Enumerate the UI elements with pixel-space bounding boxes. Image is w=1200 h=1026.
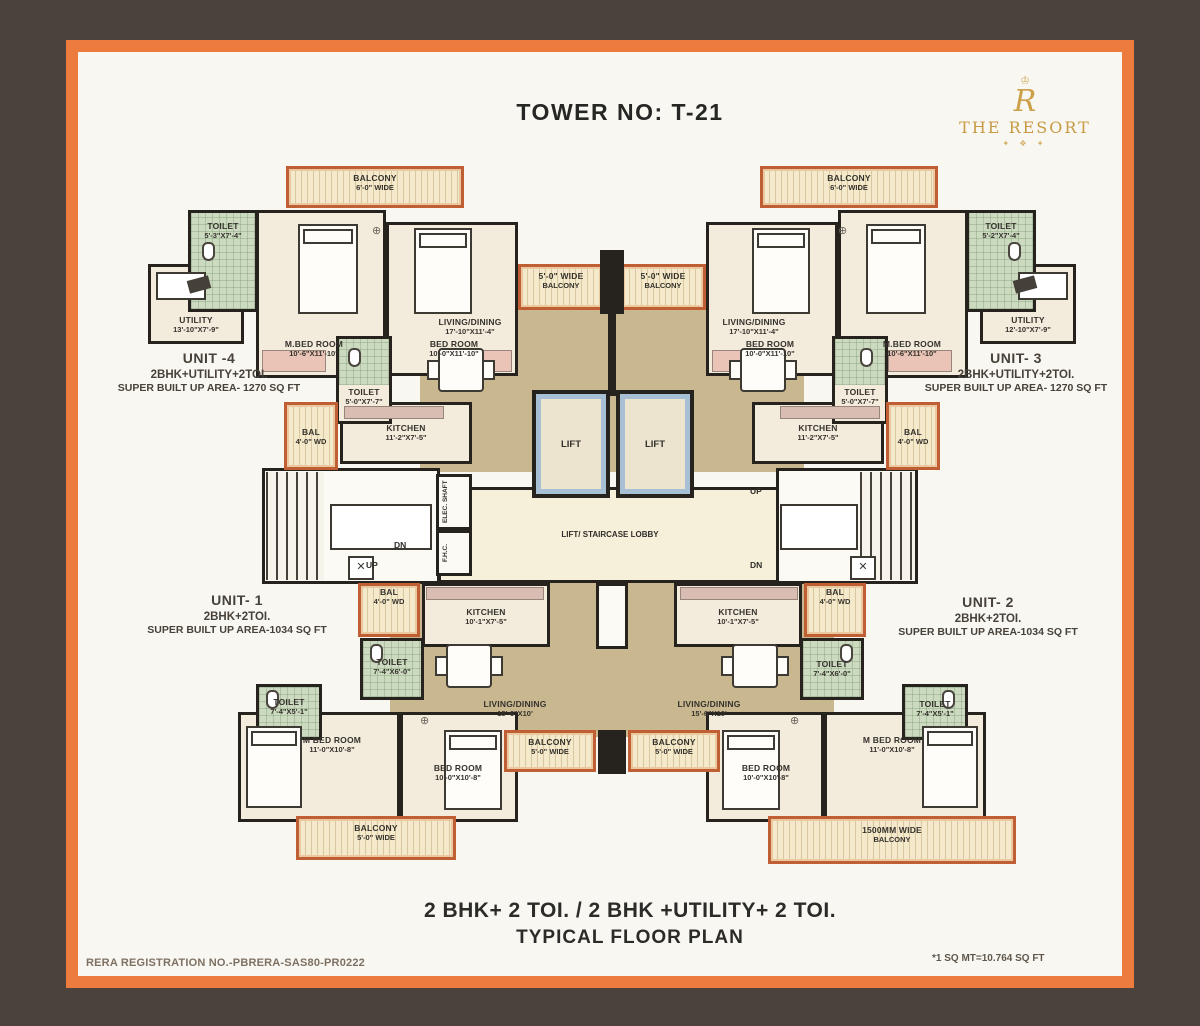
room-dim-text: 5'-0" WIDE xyxy=(504,748,596,757)
fan-icon: ⊕ xyxy=(790,716,799,727)
master-bedroom-label: M BED ROOM11'-0"X10'-8" xyxy=(282,736,382,754)
bedroom-label: BED ROOM10'-0"X10'-8" xyxy=(408,764,508,782)
room-dim-text: 5'-0" WIDE xyxy=(628,748,720,757)
fan-icon: ⊕ xyxy=(420,716,429,727)
stair-treads-left xyxy=(266,472,324,580)
room-dim-text: BALCONY xyxy=(518,282,604,291)
plan-type-caption: 2 BHK+ 2 TOI. / 2 BHK +UTILITY+ 2 TOI. xyxy=(70,899,1190,923)
living-dining-label: LIVING/DINING17'-10"X11'-4" xyxy=(424,318,516,336)
utility-label: UTILITY13'-10"X7'-9" xyxy=(150,316,242,334)
room-dim-text: 11'-0"X10'-8" xyxy=(282,746,382,755)
living-dining-label: LIVING/DINING15'-6"X10' xyxy=(462,700,568,718)
room-dim-text: 7'-4"X6'-0" xyxy=(358,668,426,677)
elec-shaft-label: ELEC. SHAFT xyxy=(442,478,449,526)
room-dim-text: 10'-1"X7'-5" xyxy=(430,618,542,627)
room-dim-text: 4'-0" WD xyxy=(887,438,939,447)
unit-name: UNIT- 2 xyxy=(862,594,1114,612)
logo-monogram: R xyxy=(936,87,1114,117)
toilet-label: TOILET7'-4"X6'-0" xyxy=(358,658,426,676)
room-dim-text: 6'-0" WIDE xyxy=(286,184,464,193)
unit-area: SUPER BUILT UP AREA-1034 SQ FT xyxy=(108,624,366,637)
room-dim-text: 10'-0"X11'-10" xyxy=(398,350,510,359)
fan-icon: ⊕ xyxy=(372,226,381,237)
bed-furniture xyxy=(298,224,358,314)
service-shaft-bottom xyxy=(596,583,628,649)
wall-center-divider xyxy=(608,312,616,396)
toilet-label: TOILET5'-0"X7'-7" xyxy=(824,388,896,406)
unit-area: SUPER BUILT UP AREA- 1270 SQ FT xyxy=(95,382,323,395)
fhc-label: F.H.C. xyxy=(442,534,449,572)
room-dim-text: 10'-0"X10'-8" xyxy=(408,774,508,783)
unit-type: 2BHK+UTILITY+2TOI. xyxy=(902,368,1130,382)
balcony-label: BALCONY5'-0" WIDE xyxy=(628,738,720,756)
kitchen-label: KITCHEN10'-1"X7'-5" xyxy=(430,608,542,626)
room-dim-text: 10'-0"X10'-8" xyxy=(716,774,816,783)
balcony-label: 5'-0" WIDEBALCONY xyxy=(620,272,706,290)
dining-table xyxy=(446,644,492,688)
unit-area: SUPER BUILT UP AREA-1034 SQ FT xyxy=(862,626,1114,639)
room-dim-text: 11'-2"X7'-5" xyxy=(346,434,466,443)
room-dim-text: BALCONY xyxy=(620,282,706,291)
wc-icon xyxy=(202,242,215,261)
bed-furniture xyxy=(866,224,926,314)
room-dim-text: 17'-10"X11'-4" xyxy=(424,328,516,337)
room-dim-text: 5'-0"X7'-7" xyxy=(824,398,896,407)
toilet-label: TOILET5'-3"X7'-4" xyxy=(188,222,258,240)
toilet-label: TOILET7'-4"X5'-1" xyxy=(898,700,972,718)
unit-name: UNIT- 3 xyxy=(902,350,1130,368)
master-bedroom-label: M BED ROOM11'-0"X10'-8" xyxy=(842,736,942,754)
room-dim-text: 12'-10"X7'-9" xyxy=(982,326,1074,335)
room-dim-text: 5'-3"X7'-4" xyxy=(188,232,258,241)
kitchen-counter xyxy=(344,406,444,419)
room-dim-text: 4'-0" WD xyxy=(804,598,866,607)
balcony-label: 1500MM WIDEBALCONY xyxy=(768,826,1016,844)
balcony-label: BALCONY6'-0" WIDE xyxy=(760,174,938,192)
room-dim-text: 11'-0"X10'-8" xyxy=(842,746,942,755)
unit-type: 2BHK+2TOI. xyxy=(862,612,1114,626)
living-dining-label: LIVING/DINING17'-10"X11'-4" xyxy=(708,318,800,336)
room-dim-text: 7'-4"X5'-1" xyxy=(898,710,972,719)
unit1-annotation: UNIT- 1 2BHK+2TOI. SUPER BUILT UP AREA-1… xyxy=(108,592,366,637)
room-dim-text: 15'-6"X10' xyxy=(462,710,568,719)
room-dim-text: 6'-0" WIDE xyxy=(760,184,938,193)
bed-furniture xyxy=(414,228,472,314)
bedroom-label: BED ROOM10'-0"X10'-8" xyxy=(716,764,816,782)
kitchen-label: KITCHEN11'-2"X7'-5" xyxy=(346,424,466,442)
lift-1: LIFT xyxy=(536,394,606,494)
stair-dn-label: DN xyxy=(394,540,406,550)
unit2-annotation: UNIT- 2 2BHK+2TOI. SUPER BUILT UP AREA-1… xyxy=(862,594,1114,639)
room-dim-text: 15'-6"X10' xyxy=(656,710,762,719)
stair-dn-label: DN xyxy=(750,560,762,570)
balcony-label: BALCONY5'-0" WIDE xyxy=(296,824,456,842)
toilet-label: TOILET5'-0"X7'-7" xyxy=(328,388,400,406)
room-dim-text: 11'-2"X7'-5" xyxy=(758,434,878,443)
room-dim-text: 5'-2"X7'-4" xyxy=(966,232,1036,241)
bed-furniture xyxy=(752,228,810,314)
toilet-label: TOILET7'-4"X6'-0" xyxy=(798,660,866,678)
kitchen-counter xyxy=(780,406,880,419)
room-dim-text: BALCONY xyxy=(768,836,1016,845)
balcony-label: BAL4'-0" WD xyxy=(804,588,866,606)
bedroom-label: BED ROOM10'-0"X11'-10" xyxy=(398,340,510,358)
wc-icon xyxy=(1008,242,1021,261)
room-dim-text: 7'-4"X5'-1" xyxy=(252,708,326,717)
balcony-label: BAL4'-0" WD xyxy=(285,428,337,446)
unit-name: UNIT- 1 xyxy=(108,592,366,610)
plan-title-caption: TYPICAL FLOOR PLAN xyxy=(70,927,1190,949)
lobby-label: LIFT/ STAIRCASE LOBBY xyxy=(560,530,660,539)
kitchen-label: KITCHEN11'-2"X7'-5" xyxy=(758,424,878,442)
kitchen-label: KITCHEN10'-1"X7'-5" xyxy=(682,608,794,626)
room-dim-text: 13'-10"X7'-9" xyxy=(150,326,242,335)
kitchen-counter xyxy=(680,587,798,600)
stair-up-label: UP xyxy=(366,560,378,570)
lift-2-label: LIFT xyxy=(645,439,665,450)
dining-table xyxy=(732,644,778,688)
room-dim-text: 7'-4"X6'-0" xyxy=(798,670,866,679)
conversion-note: *1 SQ MT=10.764 SQ FT xyxy=(932,953,1045,964)
room-dim-text: 10'-1"X7'-5" xyxy=(682,618,794,627)
balcony-label: BALCONY6'-0" WIDE xyxy=(286,174,464,192)
lift-1-label: LIFT xyxy=(561,439,581,450)
living-dining-label: LIVING/DINING15'-6"X10' xyxy=(656,700,762,718)
room-dim-text: 5'-0" WIDE xyxy=(296,834,456,843)
unit3-annotation: UNIT- 3 2BHK+UTILITY+2TOI. SUPER BUILT U… xyxy=(902,350,1130,395)
balcony-label: BAL4'-0" WD xyxy=(358,588,420,606)
toilet-label: TOILET7'-4"X5'-1" xyxy=(252,698,326,716)
room-dim-text: 17'-10"X11'-4" xyxy=(708,328,800,337)
room-dim-text: 4'-0" WD xyxy=(285,438,337,447)
kitchen-counter xyxy=(426,587,544,600)
bedroom-label: BED ROOM10'-0"X11'-10" xyxy=(714,340,826,358)
balcony-label: BAL4'-0" WD xyxy=(887,428,939,446)
room-dim-text: 4'-0" WD xyxy=(358,598,420,607)
stair-landing-right xyxy=(780,504,858,550)
utility-label: UTILITY12'-10"X7'-9" xyxy=(982,316,1074,334)
room-dim-text: 10'-0"X11'-10" xyxy=(714,350,826,359)
fan-icon: ⊕ xyxy=(838,226,847,237)
wall-center-bottom xyxy=(598,730,626,774)
unit-type: 2BHK+2TOI. xyxy=(108,610,366,624)
toilet-label: TOILET5'-2"X7'-4" xyxy=(966,222,1036,240)
unit-area: SUPER BUILT UP AREA- 1270 SQ FT xyxy=(902,382,1130,395)
unit-name: UNIT -4 xyxy=(95,350,323,368)
floor-plan-sheet: TOWER NO: T-21 ♔ R THE RESORT ✦ ❖ ✦ ELEC… xyxy=(0,0,1200,1026)
stair-landing-left xyxy=(330,504,432,550)
unit4-annotation: UNIT -4 2BHK+UTILITY+2TOI. SUPER BUILT U… xyxy=(95,350,323,395)
unit-type: 2BHK+UTILITY+2TOI. xyxy=(95,368,323,382)
duct-shaft-icon: ✕ xyxy=(850,556,876,580)
rera-registration: RERA REGISTRATION NO.-PBRERA-SAS80-PR022… xyxy=(86,957,365,969)
logo-flourish-icon: ✦ ❖ ✦ xyxy=(936,139,1114,148)
lift-2: LIFT xyxy=(620,394,690,494)
brand-logo: ♔ R THE RESORT ✦ ❖ ✦ xyxy=(936,76,1114,184)
room-dim-text: 5'-0"X7'-7" xyxy=(328,398,400,407)
balcony-label: 5'-0" WIDEBALCONY xyxy=(518,272,604,290)
balcony-label: BALCONY5'-0" WIDE xyxy=(504,738,596,756)
logo-brand-name: THE RESORT xyxy=(936,118,1114,137)
stair-up-label: UP xyxy=(750,486,762,496)
